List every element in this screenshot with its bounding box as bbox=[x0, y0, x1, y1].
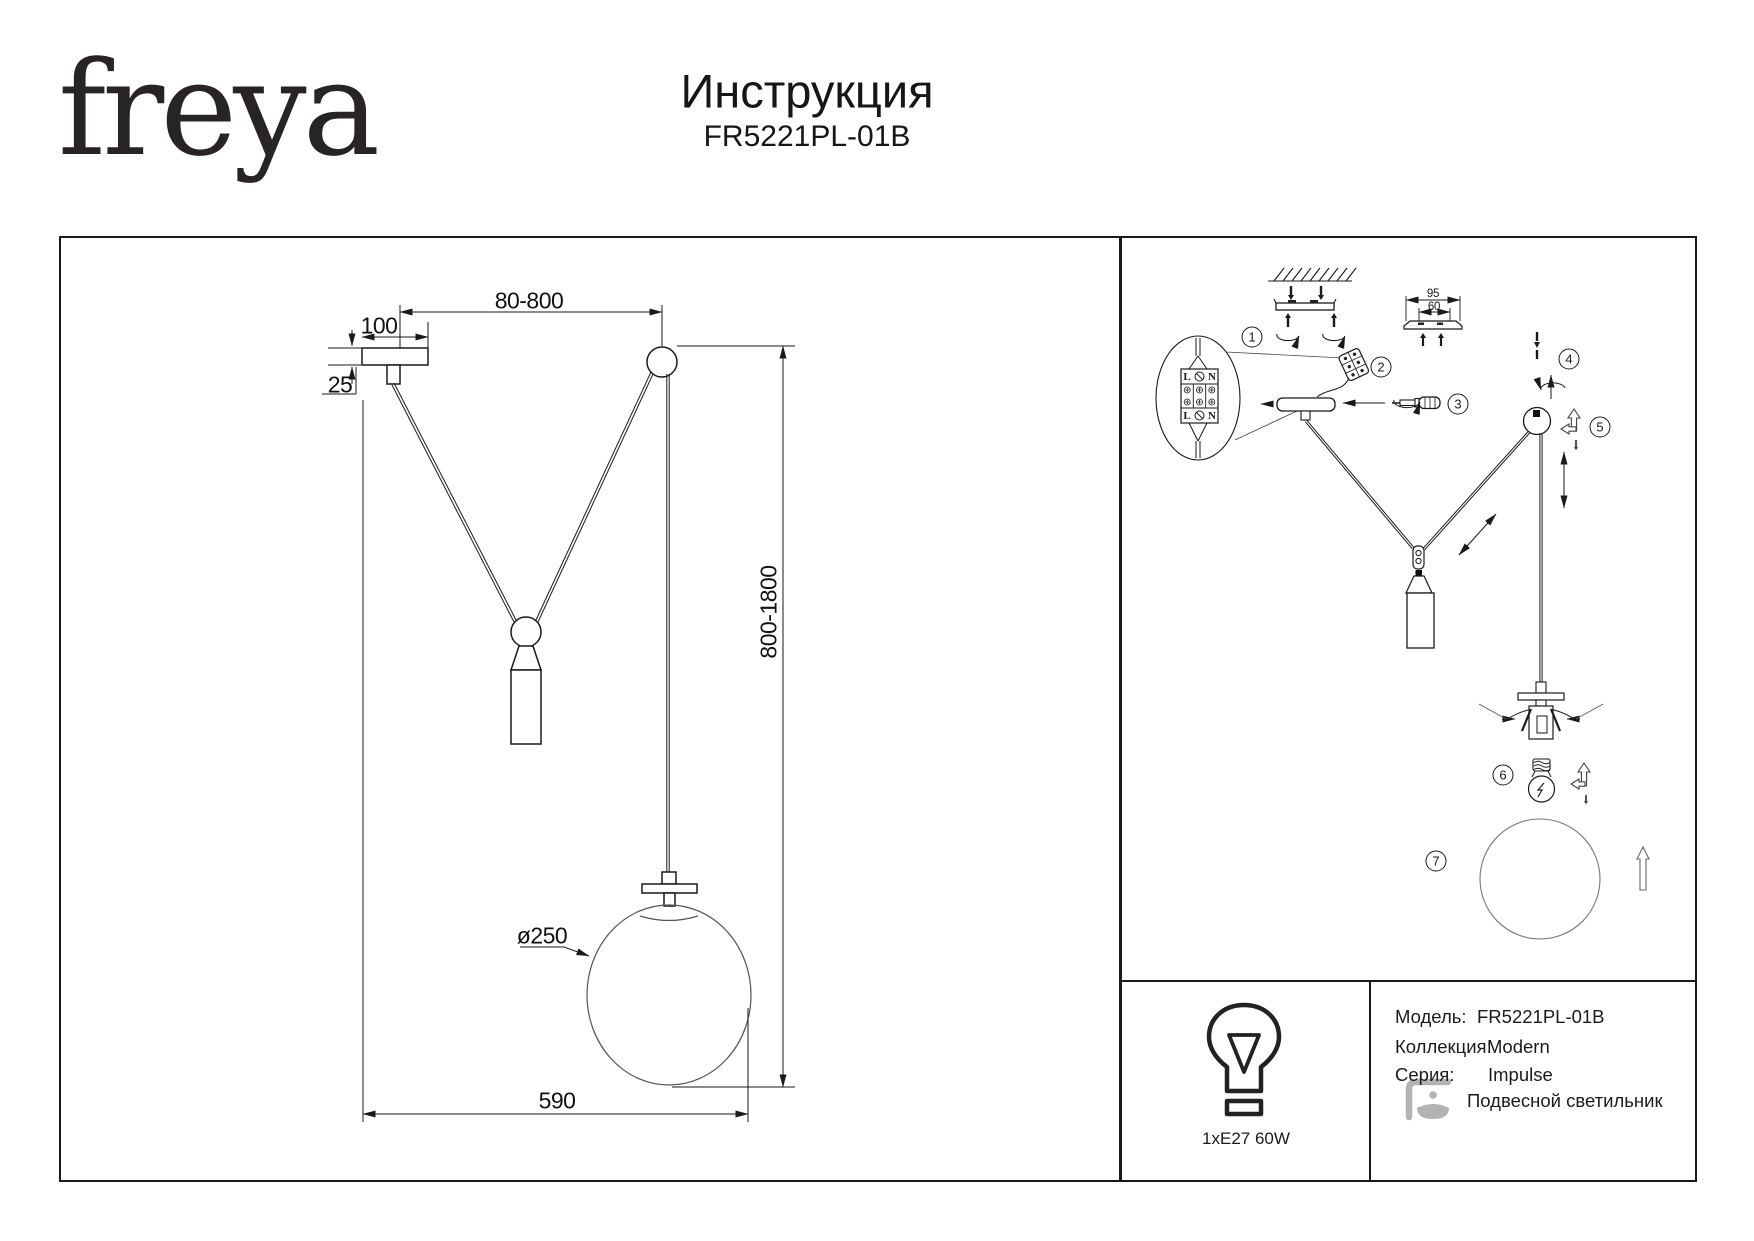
step-7-badge: 7 bbox=[1426, 851, 1447, 872]
extension-lines bbox=[322, 305, 795, 1122]
spec-collection-value: Modern bbox=[1487, 1036, 1550, 1058]
assembly-diagrams bbox=[1156, 268, 1649, 1119]
dim-bracket-inner: 60 bbox=[1428, 301, 1440, 313]
ceiling-plate bbox=[362, 348, 428, 365]
counterweight-cylinder bbox=[511, 670, 541, 744]
dim-canopy-height: 25 bbox=[328, 372, 353, 399]
instruction-sheet: freya Инструкция FR5221PL-01B bbox=[0, 0, 1754, 1241]
step-6-badge: 6 bbox=[1493, 765, 1514, 786]
step2-wiring bbox=[1261, 348, 1385, 420]
socket-stem bbox=[662, 872, 676, 884]
pulley bbox=[647, 347, 677, 377]
counterweight-ball bbox=[511, 617, 541, 647]
dim-shade-diameter: ø250 bbox=[517, 923, 567, 950]
terminal-neutral-label-bottom: N bbox=[1208, 410, 1216, 422]
lamp-diagram bbox=[1305, 408, 1603, 740]
terminal-live-label-top: L bbox=[1183, 371, 1190, 383]
dim-bracket-outer: 95 bbox=[1427, 288, 1439, 300]
step7-globe-install bbox=[1480, 819, 1649, 939]
step-4-badge: 4 bbox=[1559, 349, 1580, 370]
dim-bottom-span: 590 bbox=[539, 1088, 576, 1115]
spec-bulb-label: 1xE27 60W bbox=[1202, 1129, 1290, 1149]
spec-series-value: Impulse bbox=[1488, 1064, 1553, 1086]
step-2-badge: 2 bbox=[1371, 357, 1392, 378]
pendant-lamp-icon bbox=[1409, 1082, 1449, 1119]
spec-model-value: FR5221PL-01B bbox=[1477, 1006, 1605, 1028]
step-3-badge: 3 bbox=[1448, 394, 1469, 415]
spec-bulb-icon bbox=[1209, 1005, 1279, 1114]
lamp-parts bbox=[362, 347, 697, 906]
step3-screwdriver bbox=[1392, 397, 1440, 409]
socket-disc bbox=[642, 884, 697, 893]
step6-bulb-install bbox=[1529, 759, 1591, 805]
spec-collection-label: Коллекция: bbox=[1395, 1036, 1492, 1058]
step-5-badge: 5 bbox=[1590, 417, 1611, 438]
step-1-badge: 1 bbox=[1242, 327, 1263, 348]
glass-globe bbox=[587, 905, 751, 1085]
terminal-neutral-label-top: N bbox=[1208, 371, 1216, 383]
dimension-drawing bbox=[322, 305, 795, 1122]
terminal-live-label-bottom: L bbox=[1183, 410, 1190, 422]
socket-neck bbox=[664, 893, 675, 906]
counterweight-cone bbox=[511, 646, 541, 670]
spec-series-label: Серия: bbox=[1395, 1064, 1454, 1086]
step1-ceiling-mount bbox=[1268, 268, 1356, 341]
spec-model-label: Модель: bbox=[1395, 1006, 1467, 1028]
dim-height-range: 800-1800 bbox=[756, 565, 783, 658]
dim-top-offset: 80-800 bbox=[495, 288, 564, 315]
spec-type-value: Подвесной светильник bbox=[1467, 1090, 1663, 1112]
dim-canopy-width: 100 bbox=[361, 313, 398, 340]
canopy-stem bbox=[387, 365, 400, 384]
